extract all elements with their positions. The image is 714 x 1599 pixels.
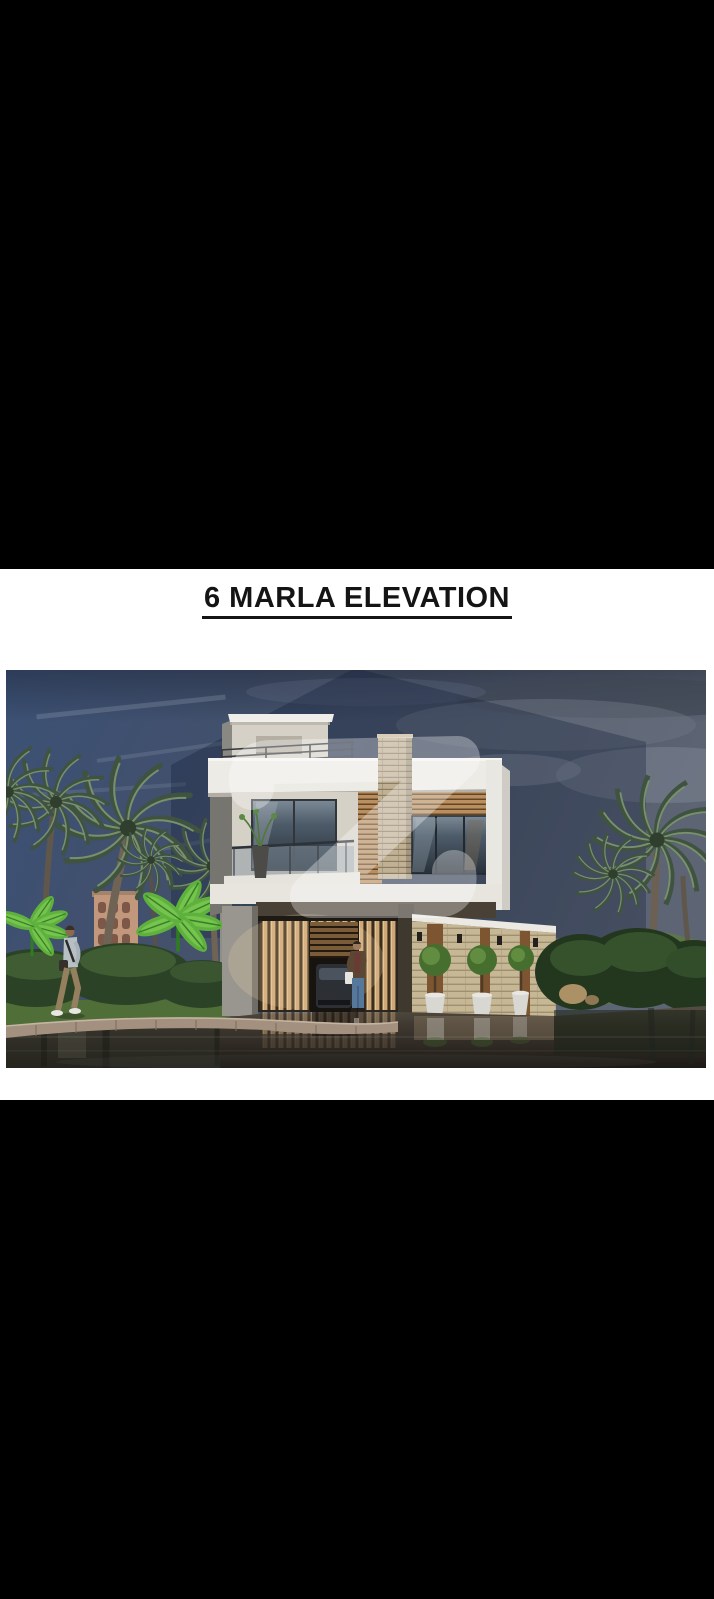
garage-car bbox=[316, 964, 352, 1008]
elevation-photo bbox=[6, 670, 706, 1068]
right-wall-return bbox=[502, 765, 510, 910]
bottom-letterbox bbox=[0, 1100, 714, 1599]
title-row: 6 MARLA ELEVATION bbox=[0, 583, 714, 619]
shopping-bag bbox=[345, 972, 353, 984]
top-letterbox bbox=[0, 0, 714, 569]
screenshot-root: { "window": { "letterbox_color": "#00000… bbox=[0, 0, 714, 1599]
listing-sheet: 6 MARLA ELEVATION bbox=[0, 569, 714, 1100]
page-title: 6 MARLA ELEVATION bbox=[202, 583, 512, 619]
gate-right-pillar bbox=[398, 904, 414, 1016]
